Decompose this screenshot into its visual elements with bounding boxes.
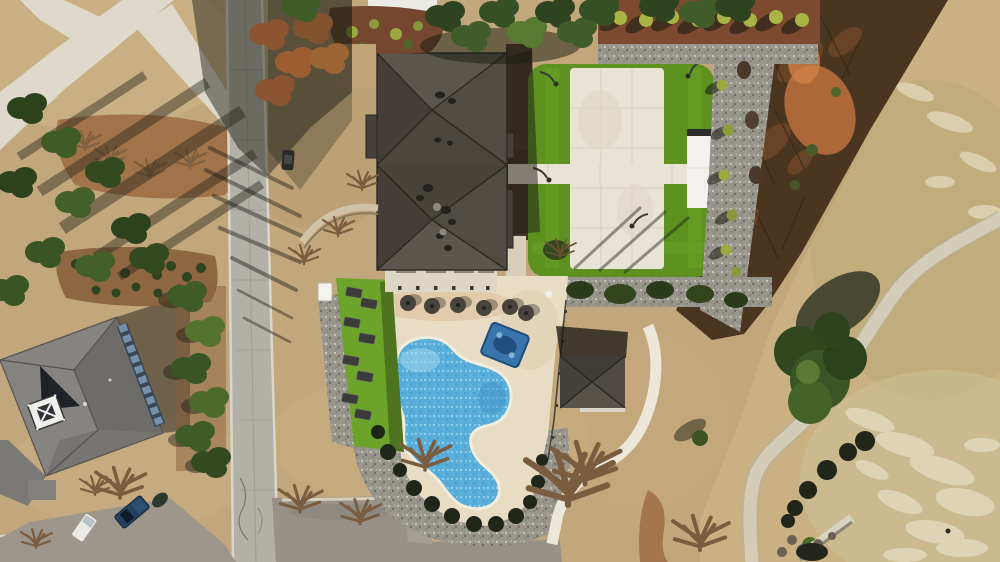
wall-dark-tree — [796, 543, 828, 561]
distant-figure — [946, 529, 951, 534]
roof-fan — [440, 229, 447, 236]
clubhouse-roof — [366, 53, 514, 270]
pool-shallow-highlight — [400, 348, 440, 372]
pool-house-roof — [560, 356, 625, 412]
roof-wing-right — [507, 133, 514, 158]
storage-box — [318, 283, 332, 301]
roof-wing-left — [366, 115, 377, 158]
roof-fan — [433, 203, 441, 211]
deck-trash-can — [546, 291, 553, 298]
small-tree — [692, 430, 708, 446]
pad-stain — [578, 90, 622, 150]
brush-green-shrub — [806, 144, 818, 156]
brush-green-shrub — [790, 180, 800, 190]
brush-green-shrub — [831, 87, 841, 97]
residence-roof-step — [28, 480, 56, 500]
roof-wing-right2 — [507, 190, 513, 248]
curb-car — [281, 150, 294, 171]
aerial-photo — [0, 0, 1000, 562]
pool-deep-shade — [478, 382, 506, 414]
pool-house-fascia — [580, 408, 625, 412]
aerial-photo-canvas — [0, 0, 1000, 562]
